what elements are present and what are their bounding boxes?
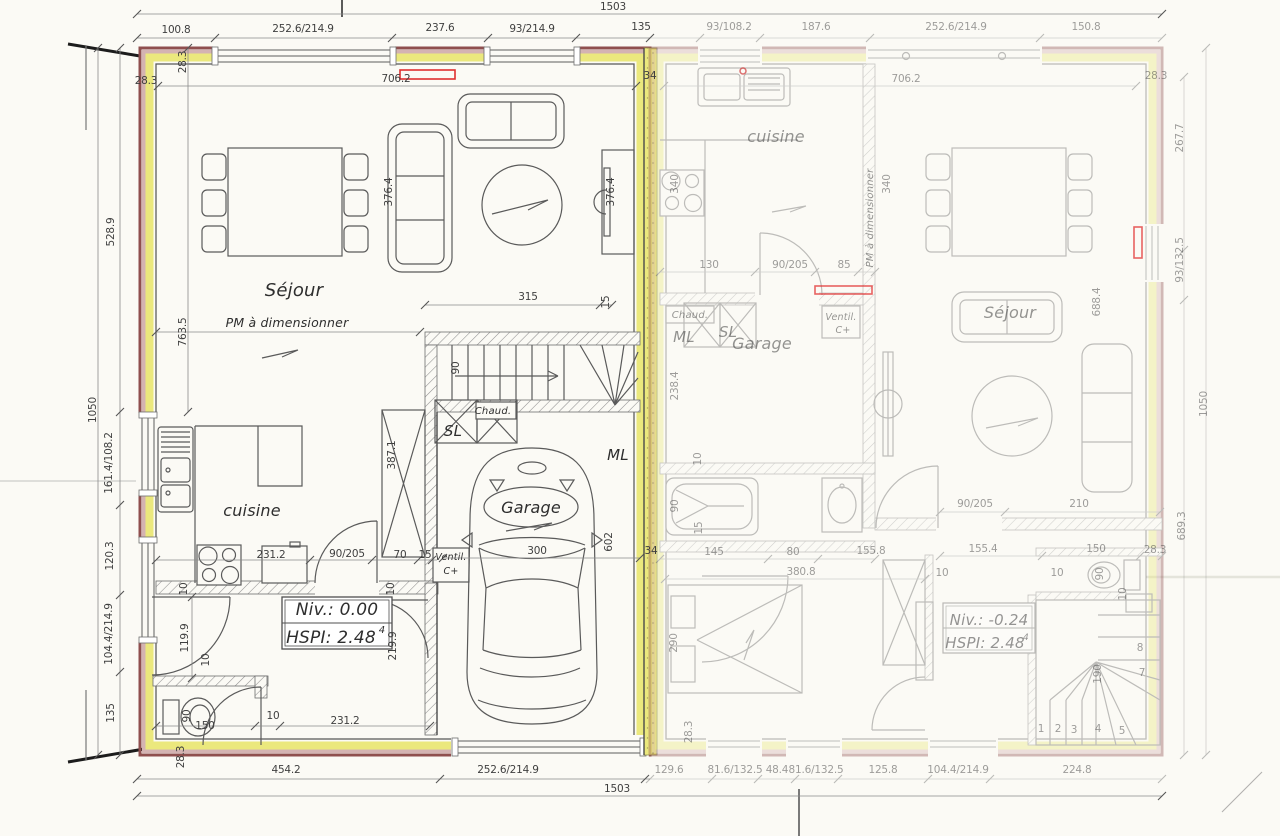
dimension-label: 237.6 [425, 22, 455, 34]
dimension-label: 93/214.9 [509, 23, 554, 35]
left-unit-interior-walls [153, 332, 640, 735]
dimension-label: 28.3 [683, 721, 695, 744]
dimension-label: 340 [881, 174, 893, 193]
dimension-label: 290 [668, 633, 680, 652]
dimension-label: 3 [1071, 724, 1077, 736]
room-label: C+ [836, 325, 851, 336]
dimension-label: 763.5 [177, 317, 189, 346]
dimension-label: 688.4 [1091, 287, 1103, 317]
dimension-label: 387.1 [386, 440, 398, 469]
dimension-label: 28.3 [177, 51, 189, 74]
dimension-label: 28.3 [1145, 70, 1168, 82]
dimension-label: 150 [195, 720, 214, 732]
dimension-label: 28.3 [135, 75, 158, 87]
room-label-cuisine-left: cuisine [223, 501, 281, 520]
dimension-label: 602 [603, 532, 615, 551]
left-unit [94, 34, 654, 783]
dimension-label: 315 [518, 291, 537, 303]
round-table [482, 165, 562, 245]
door-hall-right [872, 677, 925, 730]
dimension-label: 10 [385, 583, 397, 596]
room-label: C+ [444, 566, 459, 577]
floor-plan-drawing: 1503100.8252.6/214.9237.693/214.913528.3… [0, 0, 1280, 836]
dimension-label: 187.6 [801, 21, 831, 33]
dimension-label: 28.3 [1144, 544, 1167, 556]
dimension-label: 4 [1095, 723, 1102, 735]
dimension-label: 93/108.2 [706, 21, 751, 33]
right-unit [646, 34, 1210, 783]
toilet-tank-right [1124, 560, 1140, 590]
kitchen-sink [158, 427, 193, 512]
window-kitchen [136, 412, 160, 496]
dimension-label: 10 [1051, 567, 1064, 579]
dimension-label: 528.9 [105, 217, 117, 246]
dimension-label: 90/205 [772, 259, 808, 271]
bed [668, 585, 802, 693]
room-label-garage-left: Garage [501, 498, 561, 517]
dimension-label: 90/205 [957, 498, 993, 510]
toilet-tank [163, 700, 179, 734]
dimension-label: 1 [1038, 723, 1044, 735]
dimension-label: 90 [450, 362, 462, 375]
dimension-label: 10 [200, 654, 212, 667]
dimension-label: 104.4/214.9 [927, 764, 988, 776]
room-label-ventil-left: Ventil. [435, 552, 466, 563]
dimension-label: 135 [105, 703, 117, 722]
direction-arrow [262, 350, 298, 358]
dimension-label: 689.3 [1176, 511, 1188, 540]
dimension-label: 706.2 [891, 73, 920, 85]
dimension-label: 380.8 [786, 566, 815, 578]
dining-table [228, 148, 342, 256]
sofa-three-seat-right [1082, 344, 1132, 492]
garage-door-opening [451, 735, 649, 759]
dimension-label: 267.7 [1174, 123, 1186, 152]
dimension-label: 34 [644, 70, 657, 82]
sofa-three-seat [388, 124, 452, 272]
dimension-label: 70 [394, 549, 407, 561]
dimension-label: 120.3 [104, 541, 116, 570]
dimension-label: 80 [787, 546, 800, 558]
door-hall [152, 597, 230, 675]
room-label-chaud-right: Chaud. [672, 310, 709, 321]
dimension-label: 150 [1086, 543, 1105, 555]
dimension-label: 150.8 [1071, 21, 1100, 33]
dimension-label: 706.2 [381, 73, 410, 85]
dimension-label: 81.6/132.5 [789, 764, 844, 776]
dimension-label: 90 [669, 500, 681, 513]
room-label-sl-left: SL [444, 422, 462, 440]
dimension-label: 1050 [87, 397, 99, 423]
dimension-label: 231.2 [256, 549, 285, 561]
room-label-garage-right: Garage [732, 334, 792, 353]
hspi-label-left: HSPI: 2.48 [286, 628, 376, 648]
dimension-label: 155.4 [968, 543, 998, 555]
dimension-label: 252.6/214.9 [272, 23, 333, 35]
hspi-label-right: HSPI: 2.48 [945, 634, 1025, 652]
dimension-label: 130 [699, 259, 718, 271]
dimension-label: 252.6/214.9 [477, 764, 538, 776]
dimension-label: 219.9 [387, 631, 399, 660]
dimension-label: 81.6/132.5 [708, 764, 763, 776]
dimension-label: 48.4 [766, 764, 789, 776]
dimension-label: 15 [419, 549, 432, 561]
dining-table-right [952, 148, 1066, 256]
dimension-label: 90 [1094, 568, 1106, 581]
dimension-label: 104.4/214.9 [103, 603, 115, 664]
dimension-label: 10 [692, 453, 704, 466]
room-label-sejour-left: Séjour [265, 280, 325, 301]
car [462, 448, 602, 724]
dimension-label: 90/205 [329, 548, 365, 560]
dimension-label: 125.8 [868, 764, 897, 776]
direction-arrow [492, 200, 548, 214]
note-pm-left: PM à dimensionner [226, 315, 349, 330]
dimension-label: 7 [1139, 667, 1145, 679]
dimension-label: 252.6/214.9 [925, 21, 986, 33]
room-label-cuisine-right: cuisine [747, 127, 805, 146]
dimension-label: 155.8 [856, 545, 885, 557]
dimension-label: 340 [669, 174, 681, 193]
room-label-sejour-right: Séjour [984, 303, 1037, 322]
dimension-label: 2 [1055, 723, 1061, 735]
dimension-label: 28.3 [175, 746, 187, 769]
dim-total-bottom: 1503 [604, 783, 630, 795]
dimension-label: 1050 [1198, 391, 1210, 417]
room-label-ml-right: ML [673, 328, 695, 346]
room-label-ventil-right: Ventil. [825, 312, 856, 323]
dimension-label: 15 [693, 522, 705, 535]
dimension-label: 300 [527, 545, 546, 557]
dimension-label: 10 [1117, 588, 1129, 601]
level-label-right: Niv.: -0.24 [950, 611, 1029, 629]
room-label-ml-left: ML [607, 446, 629, 464]
dimension-label: 119.9 [179, 623, 191, 652]
dimension-label: 161.4/108.2 [103, 432, 115, 493]
dimension-label: 190 [1092, 664, 1104, 683]
room-label: 4 [379, 625, 386, 636]
window-top-large [212, 44, 396, 68]
dimension-label: 10 [936, 567, 949, 579]
dimension-label: 10 [267, 710, 280, 722]
room-label-chaud-left: Chaud. [475, 406, 512, 417]
dimension-label: 145 [704, 546, 723, 558]
dimension-label: 10 [178, 583, 190, 596]
dimension-label: 376.4 [605, 177, 617, 207]
dimension-label: 93/132.5 [1174, 237, 1186, 282]
dimension-label: 90 [181, 710, 193, 723]
dimension-label: 85 [838, 259, 851, 271]
dimension-label: 15 [600, 296, 612, 309]
dimension-label: 238.4 [669, 371, 681, 401]
level-label-left: Niv.: 0.00 [296, 600, 379, 620]
note-pm-right: PM à dimensionner [864, 168, 876, 268]
bedroom-right [668, 560, 933, 693]
dimension-label: 129.6 [654, 764, 684, 776]
dimension-label: 376.4 [383, 177, 395, 207]
dimension-label: 8 [1137, 642, 1143, 654]
dimension-label: 454.2 [271, 764, 300, 776]
dimension-label: 100.8 [161, 24, 190, 36]
dimension-label: 135 [631, 21, 650, 33]
scanned-floor-plan-page: 1503100.8252.6/214.9237.693/214.913528.3… [0, 0, 1280, 836]
round-table-right [972, 376, 1052, 456]
staircase-left [452, 345, 638, 405]
dimension-label: 224.8 [1062, 764, 1091, 776]
dimension-label: 231.2 [330, 715, 359, 727]
window-top-small [484, 44, 580, 68]
room-label: 4 [1023, 633, 1029, 643]
dimension-label: 34 [645, 545, 658, 557]
dim-total-top: 1503 [600, 1, 626, 13]
dimension-label: 5 [1119, 725, 1125, 737]
dimension-label: 210 [1069, 498, 1088, 510]
